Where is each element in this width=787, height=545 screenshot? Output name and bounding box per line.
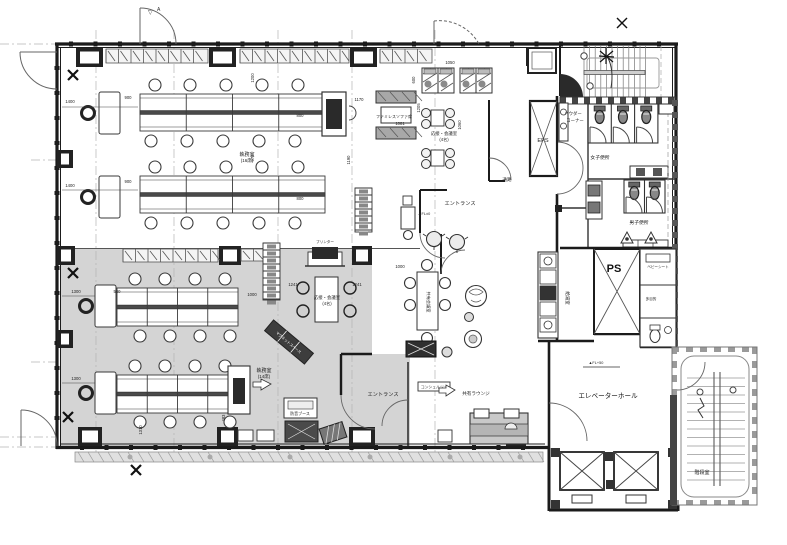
svg-text:540: 540 <box>114 289 122 294</box>
svg-text:1241: 1241 <box>352 282 362 287</box>
svg-text:1000: 1000 <box>247 292 257 297</box>
svg-text:パウダー: パウダー <box>564 110 582 117</box>
svg-text:給湯室: 給湯室 <box>564 291 571 305</box>
svg-text:通路: 通路 <box>502 176 512 183</box>
svg-text:1300: 1300 <box>71 289 81 294</box>
svg-text:応接・会議室: 応接・会議室 <box>431 130 458 137</box>
svg-text:多目的: 多目的 <box>646 296 657 301</box>
svg-text:階段室: 階段室 <box>694 469 709 476</box>
svg-text:1050: 1050 <box>445 60 455 65</box>
svg-text:エントランス: エントランス <box>367 391 398 398</box>
svg-text:800: 800 <box>297 113 305 118</box>
svg-text:エレベーターホール: エレベーターホール <box>578 391 638 400</box>
svg-text:▽: ▽ <box>148 10 153 16</box>
svg-text:1000: 1000 <box>395 264 405 269</box>
svg-text:(14席): (14席) <box>258 373 271 380</box>
svg-text:800: 800 <box>297 196 305 201</box>
svg-text:(4名): (4名) <box>439 136 449 143</box>
svg-text:900: 900 <box>125 95 133 100</box>
svg-text:1081: 1081 <box>395 121 405 126</box>
svg-text:執務室: 執務室 <box>256 367 271 374</box>
svg-text:1241: 1241 <box>288 282 298 287</box>
svg-text:900: 900 <box>125 179 133 184</box>
svg-text:1190: 1190 <box>346 155 351 165</box>
svg-text:男子便所: 男子便所 <box>629 219 648 226</box>
svg-text:EPS: EPS <box>537 138 548 144</box>
svg-text:応接・会議室: 応接・会議室 <box>314 294 341 301</box>
svg-text:1300: 1300 <box>71 376 81 381</box>
svg-text:プリンター: プリンター <box>316 239 334 244</box>
svg-text:978: 978 <box>250 154 255 162</box>
svg-text:エントランス: エントランス <box>444 200 475 207</box>
svg-text:共有ラウンジ: 共有ラウンジ <box>462 390 490 397</box>
svg-text:483: 483 <box>221 414 226 422</box>
svg-text:600: 600 <box>411 76 416 84</box>
svg-text:ファミレスソファ席: ファミレスソファ席 <box>376 113 412 119</box>
svg-text:1060: 1060 <box>457 120 462 130</box>
svg-text:1170: 1170 <box>354 97 364 102</box>
svg-text:ベビーシート: ベビーシート <box>647 264 669 269</box>
svg-text:女子便所: 女子便所 <box>590 154 609 161</box>
svg-text:(4名): (4名) <box>322 300 332 307</box>
svg-text:1205: 1205 <box>416 103 421 113</box>
svg-text:1400: 1400 <box>65 183 75 188</box>
svg-text:共有会議室: 共有会議室 <box>425 292 432 313</box>
svg-text:1200: 1200 <box>250 73 255 83</box>
svg-text:▲FL+50: ▲FL+50 <box>589 361 604 365</box>
svg-text:▲FL±0: ▲FL±0 <box>418 212 430 216</box>
svg-text:1400: 1400 <box>65 99 75 104</box>
svg-text:防音ブース: 防音ブース <box>290 410 310 416</box>
svg-text:PS: PS <box>607 263 622 275</box>
svg-text:1310: 1310 <box>138 425 143 435</box>
